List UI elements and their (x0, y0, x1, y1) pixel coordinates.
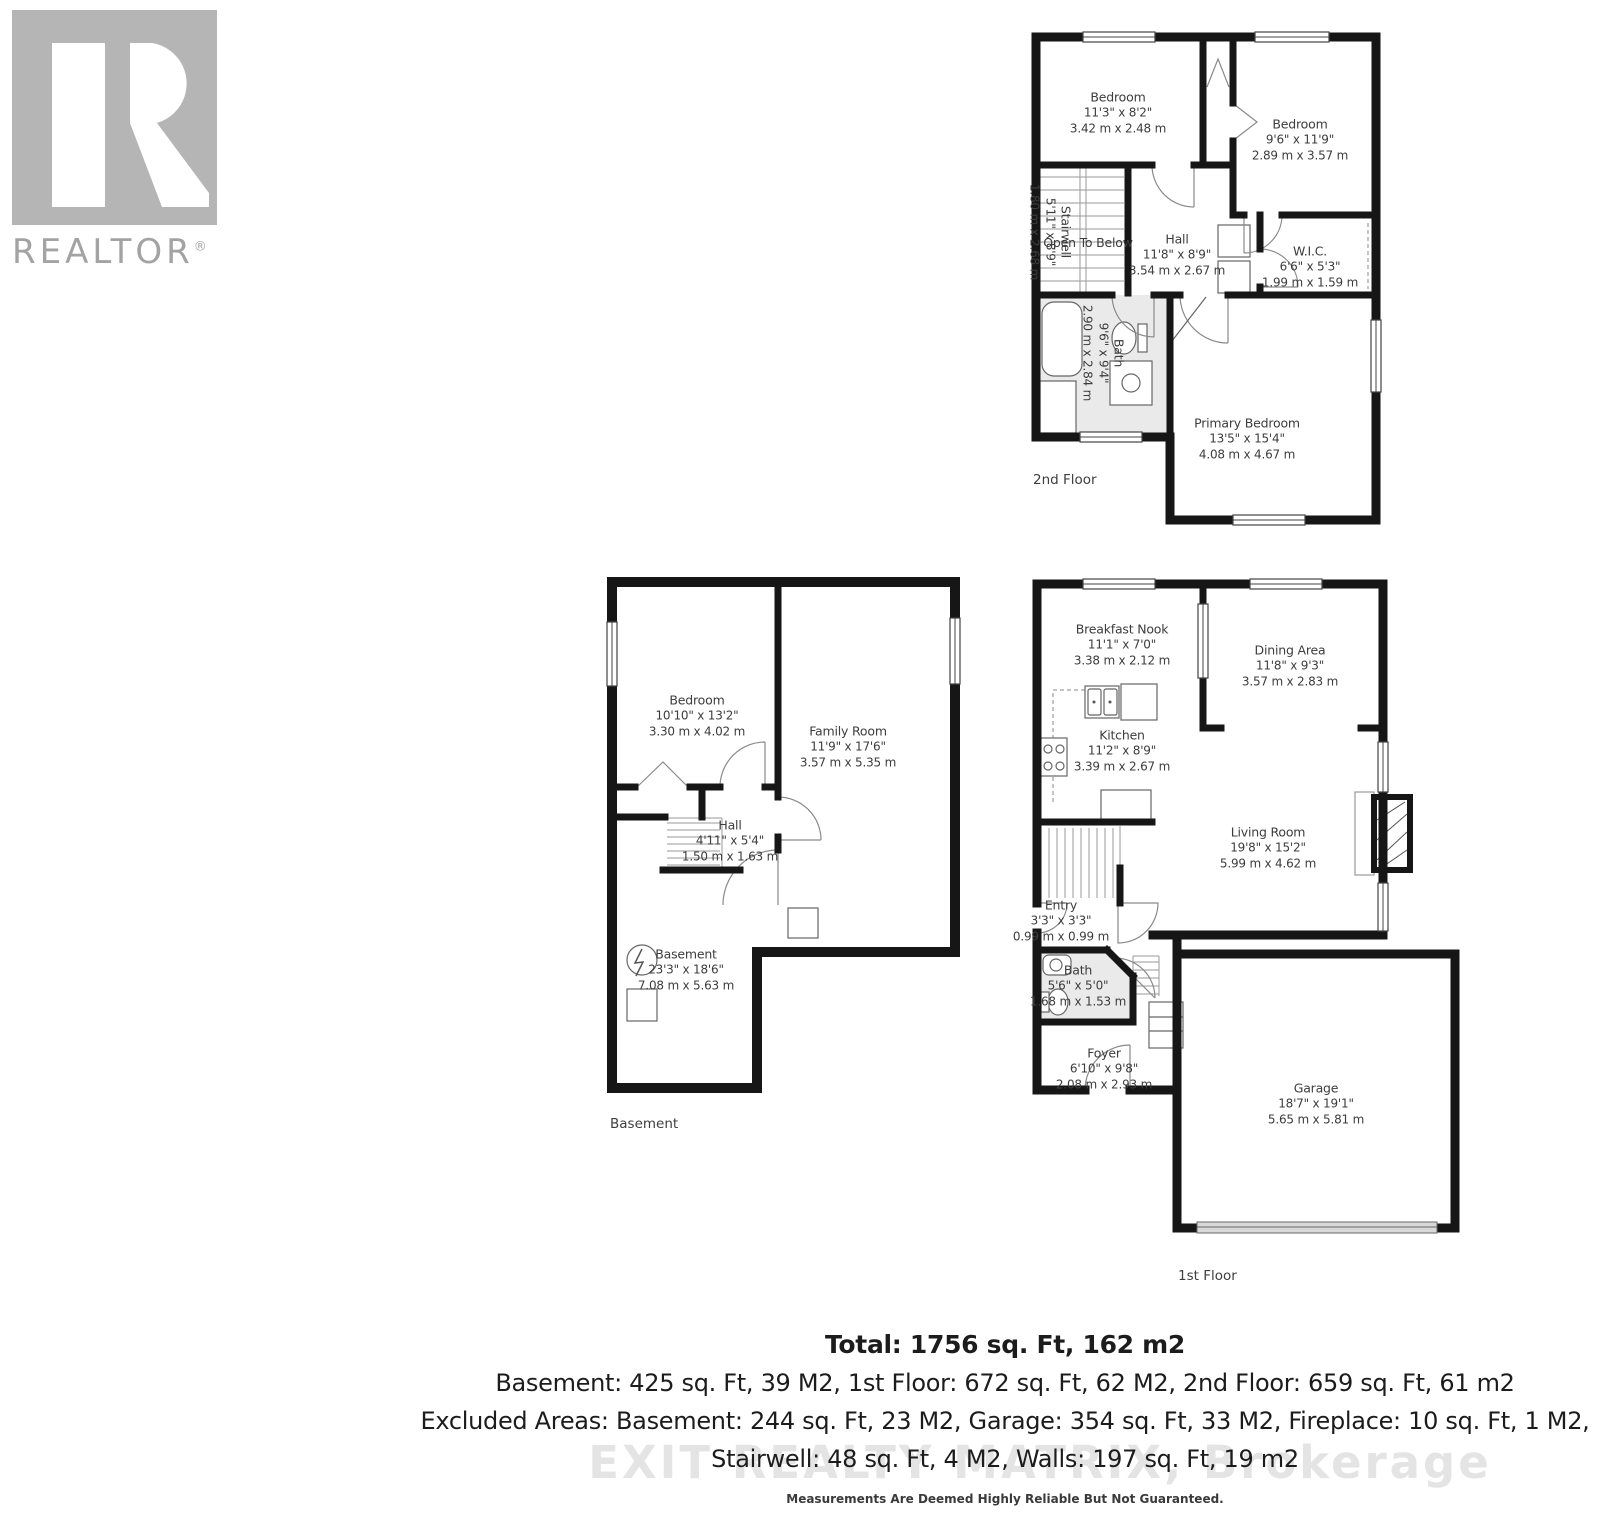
fridge-icon (1121, 684, 1157, 720)
room-label-basement: Basement 23'3" x 18'6" 7.08 m x 5.63 m (638, 946, 734, 993)
measurement-disclaimer: Measurements Are Deemed Highly Reliable … (786, 1492, 1223, 1506)
basement-plan (595, 565, 975, 1110)
realtor-wordmark: REALTOR® (12, 235, 242, 269)
utility-box-icon (788, 908, 818, 938)
label-open-to-below: Open To Below (1043, 235, 1133, 251)
room-label-dining-area: Dining Area 11'8" x 9'3" 3.57 m x 2.83 m (1242, 642, 1338, 689)
kitchen-sink-icon (1085, 686, 1119, 718)
room-label-entry: Entry 3'3" x 3'3" 0.99 m x 0.99 m (1013, 897, 1109, 944)
room-label-hall-basement: Hall 4'11" x 5'4" 1.50 m x 1.63 m (682, 817, 778, 864)
room-label-family-room: Family Room 11'9" x 17'6" 3.57 m x 5.35 … (800, 723, 896, 770)
room-label-living-room: Living Room 19'8" x 15'2" 5.99 m x 4.62 … (1220, 824, 1316, 871)
summary-total: Total: 1756 sq. Ft, 162 m2 (825, 1330, 1185, 1359)
registered-symbol: ® (194, 240, 207, 255)
furnace-icon (627, 989, 657, 1021)
room-label-wic: W.I.C. 6'6" x 5'3" 1.99 m x 1.59 m (1262, 243, 1358, 290)
room-label-bath-2nd: Bath 9'6" x 9'4" 2.90 m x 2.84 m (1079, 305, 1126, 401)
floor-label-1st: 1st Floor (1178, 1268, 1237, 1284)
room-label-garage: Garage 18'7" x 19'1" 5.65 m x 5.81 m (1268, 1080, 1364, 1127)
room-label-primary-bedroom: Primary Bedroom 13'5" x 15'4" 4.08 m x 4… (1194, 415, 1300, 462)
realtor-logo: REALTOR® (12, 10, 242, 269)
room-label-bath-1st: Bath 5'6" x 5'0" 1.68 m x 1.53 m (1030, 962, 1126, 1009)
room-label-stairwell: Stairwell 5'11" x 8'9" 1.80 m x 2.68 m (1026, 184, 1073, 280)
garage-door (1197, 1222, 1437, 1233)
linen-closet (1040, 381, 1076, 433)
room-label-breakfast-nook: Breakfast Nook 11'1" x 7'0" 3.38 m x 2.1… (1074, 621, 1170, 668)
floor-label-2nd: 2nd Floor (1033, 472, 1097, 488)
bathtub-icon (1042, 302, 1082, 376)
windows (607, 618, 960, 686)
room-label-foyer: Foyer 6'10" x 9'8" 2.08 m x 2.93 m (1056, 1045, 1152, 1092)
room-label-bedroom-left: Bedroom 11'3" x 8'2" 3.42 m x 2.48 m (1070, 89, 1166, 136)
room-label-hall-2nd: Hall 11'8" x 8'9" 3.54 m x 2.67 m (1129, 231, 1225, 278)
exterior-walls (612, 582, 955, 1088)
realtor-r-icon (12, 10, 217, 225)
summary-excluded-areas-2: Stairwell: 48 sq. Ft, 4 M2, Walls: 197 s… (711, 1445, 1299, 1473)
counter-peninsula (1101, 790, 1151, 820)
room-label-bedroom-basement: Bedroom 10'10" x 13'2" 3.30 m x 4.02 m (649, 692, 745, 739)
closet-bifold-door (637, 762, 688, 787)
floorplan-page: REALTOR® (0, 0, 1600, 1526)
room-label-kitchen: Kitchen 11'2" x 8'9" 3.39 m x 2.67 m (1074, 727, 1170, 774)
summary-excluded-areas: Excluded Areas: Basement: 244 sq. Ft, 23… (420, 1407, 1589, 1435)
stove-icon (1039, 738, 1067, 776)
closet-bifold-door (1207, 59, 1229, 87)
summary-floor-areas: Basement: 425 sq. Ft, 39 M2, 1st Floor: … (495, 1369, 1514, 1397)
floor-label-basement: Basement (610, 1116, 678, 1132)
room-label-bedroom-right: Bedroom 9'6" x 11'9" 2.89 m x 3.57 m (1252, 116, 1348, 163)
